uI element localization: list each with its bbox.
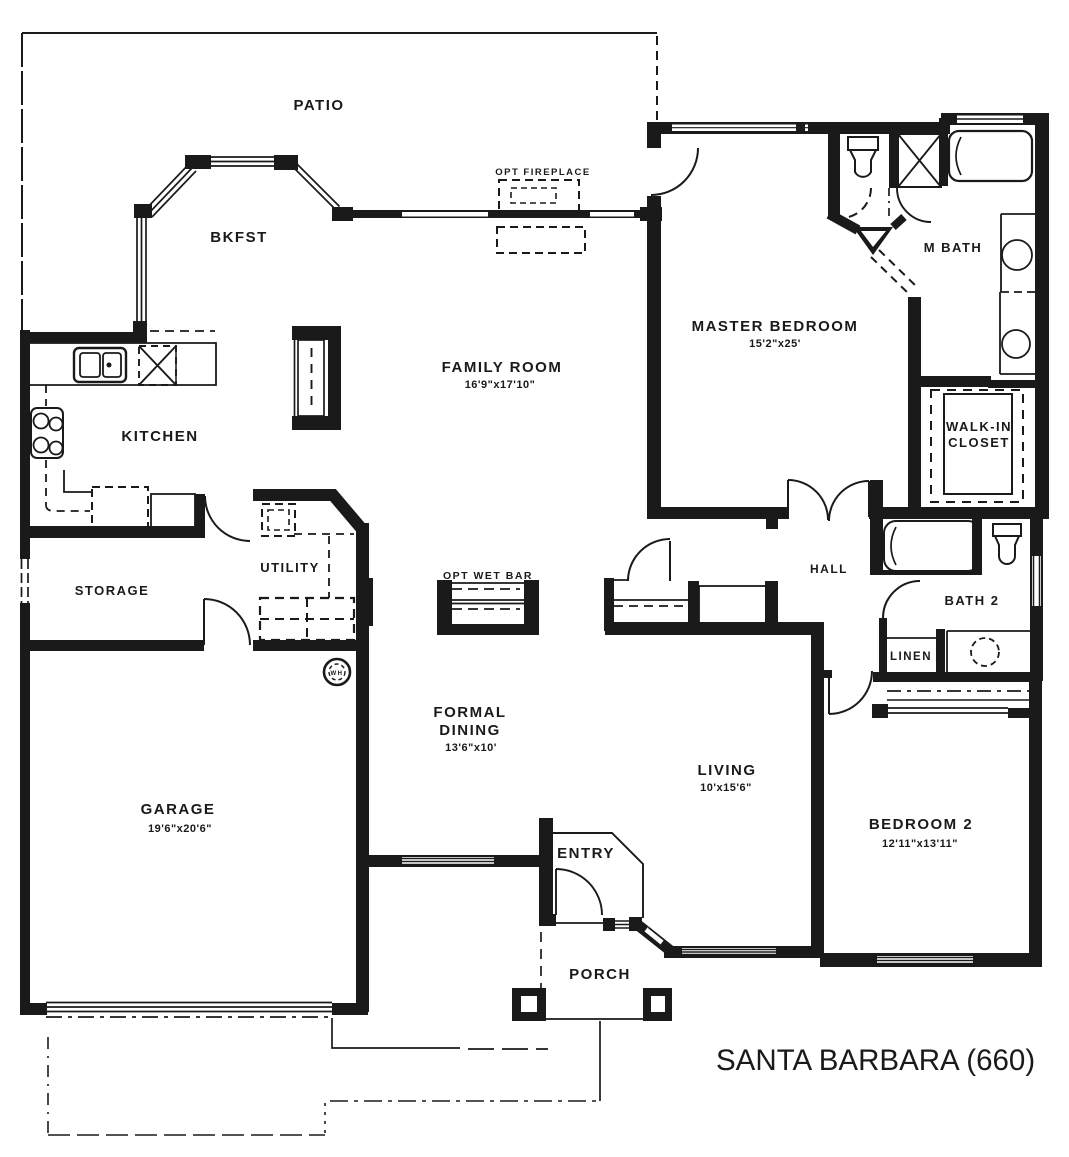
- svg-text:FORMAL: FORMAL: [433, 704, 506, 721]
- svg-text:GARAGE: GARAGE: [141, 801, 216, 818]
- svg-text:WH: WH: [331, 671, 344, 677]
- svg-text:FAMILY ROOM: FAMILY ROOM: [442, 359, 563, 376]
- svg-text:15'2"x25': 15'2"x25': [749, 338, 801, 350]
- svg-text:BATH 2: BATH 2: [945, 593, 1000, 608]
- svg-text:12'11"x13'11": 12'11"x13'11": [882, 838, 958, 850]
- svg-text:LIVING: LIVING: [697, 762, 756, 779]
- svg-text:BKFST: BKFST: [210, 229, 268, 246]
- svg-text:10'x15'6": 10'x15'6": [700, 782, 752, 794]
- svg-text:BEDROOM 2: BEDROOM 2: [869, 816, 973, 833]
- svg-text:HALL: HALL: [810, 562, 848, 576]
- svg-text:OPT FIREPLACE: OPT FIREPLACE: [495, 167, 591, 178]
- svg-text:PORCH: PORCH: [569, 966, 631, 983]
- svg-text:KITCHEN: KITCHEN: [121, 428, 198, 445]
- svg-text:WALK-IN: WALK-IN: [946, 419, 1012, 434]
- svg-text:OPT WET BAR: OPT WET BAR: [443, 570, 533, 582]
- svg-text:PATIO: PATIO: [293, 97, 344, 114]
- svg-text:13'6"x10': 13'6"x10': [445, 742, 497, 754]
- svg-text:UTILITY: UTILITY: [260, 560, 320, 575]
- svg-text:16'9"x17'10": 16'9"x17'10": [465, 379, 536, 391]
- svg-text:MASTER BEDROOM: MASTER BEDROOM: [692, 318, 859, 335]
- svg-text:STORAGE: STORAGE: [75, 583, 150, 598]
- svg-text:DINING: DINING: [439, 722, 501, 739]
- svg-text:19'6"x20'6": 19'6"x20'6": [148, 823, 212, 835]
- svg-text:SANTA BARBARA (660): SANTA BARBARA (660): [716, 1044, 1035, 1077]
- svg-text:LINEN: LINEN: [890, 651, 932, 663]
- svg-text:CLOSET: CLOSET: [948, 435, 1010, 450]
- svg-text:ENTRY: ENTRY: [557, 845, 615, 862]
- svg-text:M BATH: M BATH: [924, 240, 983, 255]
